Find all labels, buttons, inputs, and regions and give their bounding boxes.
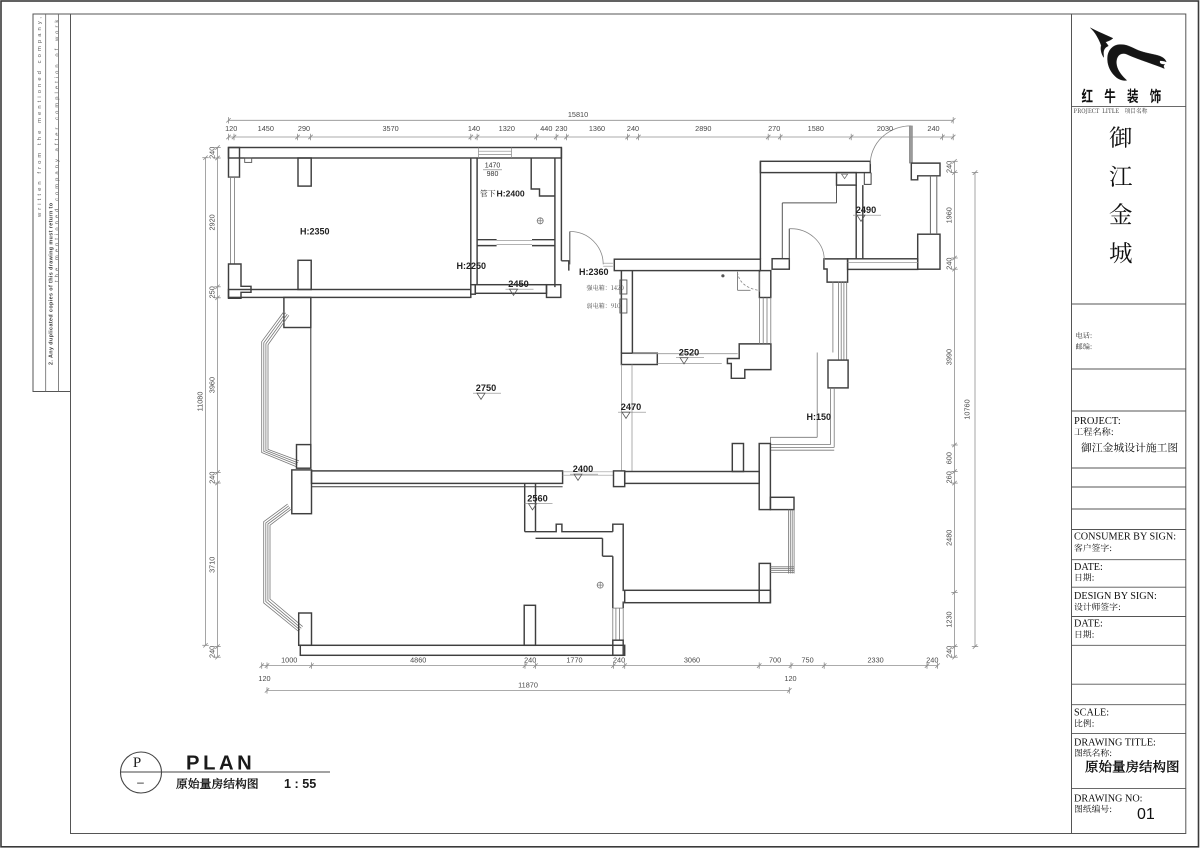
- svg-text:PROJECT:: PROJECT:: [1074, 416, 1121, 427]
- svg-text:01: 01: [1137, 806, 1155, 823]
- svg-text:DESIGN BY SIGN:: DESIGN BY SIGN:: [1074, 591, 1157, 602]
- svg-text:1960: 1960: [945, 207, 954, 223]
- svg-text:3710: 3710: [208, 557, 217, 573]
- svg-text:1 : 55: 1 : 55: [284, 777, 316, 791]
- svg-text:240: 240: [524, 656, 536, 665]
- svg-text:2490: 2490: [856, 205, 876, 215]
- svg-text:1470: 1470: [485, 163, 501, 170]
- svg-text:1230: 1230: [945, 611, 954, 627]
- svg-text:290: 290: [298, 124, 310, 133]
- svg-text:120: 120: [784, 674, 796, 683]
- svg-text:2890: 2890: [695, 124, 711, 133]
- svg-text:–: –: [137, 775, 144, 789]
- svg-text:4860: 4860: [410, 656, 426, 665]
- svg-text:2480: 2480: [944, 530, 953, 546]
- svg-text:2470: 2470: [621, 402, 641, 412]
- svg-text:440: 440: [540, 124, 552, 133]
- svg-text:3990: 3990: [945, 349, 954, 365]
- svg-text:10760: 10760: [963, 399, 972, 419]
- svg-text:240: 240: [926, 656, 938, 665]
- svg-text:2750: 2750: [476, 383, 496, 393]
- svg-text:H:2350: H:2350: [300, 227, 330, 237]
- svg-text:2330: 2330: [867, 656, 883, 665]
- svg-text:250: 250: [208, 286, 217, 298]
- svg-text:H:2250: H:2250: [457, 261, 487, 271]
- svg-text:120: 120: [225, 124, 237, 133]
- svg-text:3960: 3960: [208, 377, 217, 393]
- svg-text:11080: 11080: [196, 392, 205, 412]
- svg-text:H:2360: H:2360: [579, 267, 609, 277]
- svg-text:2400: 2400: [573, 464, 593, 474]
- svg-text:3060: 3060: [684, 656, 700, 665]
- svg-text:2. Any duplicated copies of th: 2. Any duplicated copies of this drawing…: [48, 202, 54, 365]
- svg-text:2030: 2030: [877, 124, 893, 133]
- svg-text:120: 120: [258, 674, 270, 683]
- svg-text:2920: 2920: [208, 214, 217, 230]
- svg-text:240: 240: [945, 258, 954, 270]
- svg-text:H:150: H:150: [807, 412, 832, 422]
- svg-text:H:2400: H:2400: [497, 189, 525, 199]
- svg-text:1000: 1000: [281, 656, 297, 665]
- svg-text:1360: 1360: [589, 124, 605, 133]
- svg-text:P: P: [133, 755, 141, 771]
- svg-text:240: 240: [208, 472, 217, 484]
- svg-text:240: 240: [207, 147, 216, 159]
- svg-text:CONSUMER BY SIGN:: CONSUMER BY SIGN:: [1074, 532, 1176, 543]
- svg-text:980: 980: [487, 171, 499, 178]
- svg-text:1770: 1770: [566, 656, 582, 665]
- svg-text:DATE:: DATE:: [1074, 562, 1103, 573]
- svg-text:240: 240: [627, 124, 639, 133]
- svg-text:230: 230: [555, 124, 567, 133]
- svg-text:240: 240: [613, 656, 625, 665]
- svg-text:DRAWING NO:: DRAWING NO:: [1074, 794, 1143, 805]
- svg-text:270: 270: [768, 124, 780, 133]
- svg-text:DATE:: DATE:: [1074, 619, 1103, 630]
- svg-text:700: 700: [769, 656, 781, 665]
- svg-text:PLAN: PLAN: [186, 753, 255, 775]
- svg-text:140: 140: [468, 124, 480, 133]
- svg-text:3570: 3570: [382, 124, 398, 133]
- svg-text:240: 240: [945, 161, 954, 173]
- svg-text:1450: 1450: [258, 124, 274, 133]
- svg-text:SCALE:: SCALE:: [1074, 708, 1109, 719]
- svg-text:2560: 2560: [527, 494, 547, 504]
- svg-text:DRAWING TITLE:: DRAWING TITLE:: [1074, 738, 1156, 749]
- svg-text:2520: 2520: [679, 348, 699, 358]
- svg-text:2450: 2450: [508, 279, 528, 289]
- svg-text:11870: 11870: [518, 681, 538, 690]
- svg-text:1580: 1580: [808, 124, 824, 133]
- svg-text:750: 750: [802, 656, 814, 665]
- svg-text:600: 600: [945, 452, 954, 464]
- svg-text:240: 240: [927, 124, 939, 133]
- svg-text:15810: 15810: [568, 110, 588, 119]
- svg-text:260: 260: [945, 471, 954, 483]
- svg-text:240: 240: [208, 646, 217, 658]
- svg-text:240: 240: [945, 646, 954, 658]
- svg-text:1320: 1320: [499, 124, 515, 133]
